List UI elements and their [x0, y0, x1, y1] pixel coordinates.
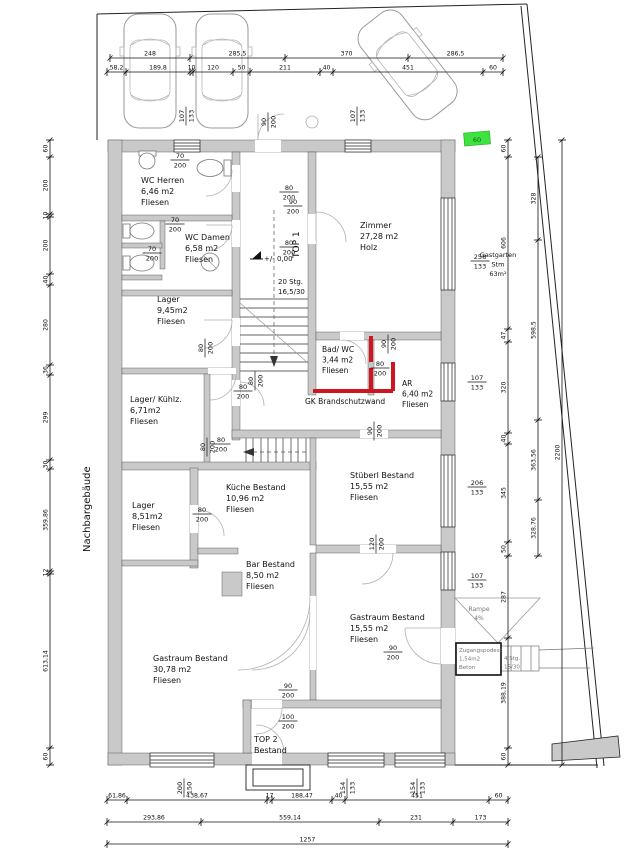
- ramp-triangle: [455, 598, 540, 643]
- neighbor-label: Nachbargebäude: [82, 466, 93, 552]
- room-lager-kuehlz-text: Lager/ Kühlz.: [130, 395, 182, 404]
- svg-text:200: 200: [282, 723, 294, 731]
- svg-text:133: 133: [349, 782, 357, 794]
- svg-text:359,86: 359,86: [43, 509, 50, 531]
- gastgarten-label-text: 63m²: [489, 270, 507, 278]
- podest-label-text: 1,54m2: [459, 657, 480, 663]
- svg-text:60: 60: [501, 753, 508, 761]
- toilet-icon: [123, 224, 130, 238]
- ext-stair-label: 4 Stg.15/30: [504, 656, 520, 671]
- svg-text:248: 248: [144, 51, 156, 58]
- toilet-icon: [224, 160, 231, 176]
- svg-text:206: 206: [471, 479, 483, 487]
- opening-dim: 90200: [279, 682, 298, 700]
- opening-dim: 107133: [468, 374, 487, 392]
- svg-text:200: 200: [43, 240, 50, 252]
- svg-text:107: 107: [178, 110, 186, 122]
- svg-text:70: 70: [171, 216, 179, 224]
- svg-text:133: 133: [359, 110, 367, 122]
- svg-text:60: 60: [43, 145, 50, 153]
- opening-dim: 107133: [468, 572, 487, 590]
- room-zimmer-text: 27,28 m2: [360, 232, 398, 241]
- entrance-porch: [246, 765, 310, 790]
- svg-text:90: 90: [366, 427, 374, 435]
- room-bar-text: Fliesen: [246, 582, 274, 591]
- svg-text:328: 328: [531, 193, 538, 205]
- svg-text:120: 120: [207, 65, 219, 72]
- gastgarten-label-text: Stm: [491, 261, 504, 269]
- room-lager-851: Lager8,51m2Fliesen: [132, 501, 163, 532]
- svg-text:200: 200: [43, 180, 50, 192]
- opening-dim: 80200: [247, 372, 265, 391]
- svg-text:17: 17: [266, 793, 274, 800]
- svg-text:100: 100: [282, 713, 294, 721]
- svg-text:133: 133: [188, 110, 196, 122]
- svg-text:133: 133: [471, 384, 483, 392]
- opening-dim: 100200: [279, 713, 298, 731]
- toilet-icon: [197, 160, 223, 177]
- svg-text:90: 90: [389, 644, 397, 652]
- room-wc-herren-text: 6,46 m2: [141, 187, 174, 196]
- svg-text:200: 200: [378, 538, 386, 550]
- room-bar-text: 8,50 m2: [246, 571, 279, 580]
- svg-text:286,5: 286,5: [447, 51, 465, 58]
- sink-icon: [139, 153, 155, 169]
- room-lager-945-text: 9,45m2: [157, 306, 188, 315]
- room-gastraum-30-text: 30,78 m2: [153, 665, 191, 674]
- opening-dim: 107133: [178, 107, 196, 126]
- room-top2-text: Bestand: [254, 746, 287, 755]
- dimension-chain: 6020010200402803629930359,8612613,1460: [43, 138, 55, 768]
- room-bad-wc-text: Bad/ WC: [322, 345, 354, 354]
- ext-stair-label-text: 4 Stg.: [504, 656, 520, 662]
- svg-text:388,19: 388,19: [501, 682, 508, 704]
- room-stueberl-text: Fliesen: [350, 493, 378, 502]
- svg-text:60: 60: [43, 753, 50, 761]
- svg-text:345: 345: [501, 487, 508, 499]
- room-bad-wc-text: 3,44 m2: [322, 356, 353, 365]
- toilet-icon: [123, 256, 130, 270]
- svg-text:40: 40: [501, 435, 508, 443]
- svg-text:559,14: 559,14: [279, 815, 301, 822]
- svg-text:80: 80: [247, 377, 255, 385]
- site-marker: [306, 116, 318, 128]
- svg-text:36: 36: [43, 366, 50, 374]
- svg-text:80: 80: [285, 239, 293, 247]
- svg-text:80: 80: [198, 506, 206, 514]
- opening-dim: 90200: [384, 644, 403, 662]
- room-lager-851-text: Fliesen: [132, 523, 160, 532]
- svg-text:30: 30: [43, 461, 50, 469]
- svg-text:200: 200: [237, 393, 249, 401]
- svg-text:287: 287: [501, 591, 508, 603]
- svg-text:293,86: 293,86: [143, 815, 165, 822]
- stair-note-text: 16,5/30: [278, 288, 305, 296]
- svg-text:107: 107: [471, 572, 483, 580]
- svg-text:328,76: 328,76: [531, 517, 538, 539]
- firewall-label: GK Brandschutzwand: [305, 397, 385, 406]
- svg-text:80: 80: [217, 436, 225, 444]
- svg-text:107: 107: [349, 110, 357, 122]
- room-gastraum-15: Gastraum Bestand15,55 m2Fliesen: [350, 613, 425, 644]
- rampe-label-text: Rampe: [468, 606, 489, 613]
- svg-text:280: 280: [43, 319, 50, 331]
- opening-dim: 120200: [368, 535, 386, 554]
- svg-text:189,8: 189,8: [149, 65, 167, 72]
- svg-text:200: 200: [283, 249, 295, 257]
- svg-text:50: 50: [238, 65, 246, 72]
- svg-text:370: 370: [341, 51, 353, 58]
- svg-text:1257: 1257: [300, 837, 316, 844]
- svg-text:133: 133: [471, 582, 483, 590]
- room-ar-text: 6,40 m2: [402, 390, 433, 399]
- room-stueberl-text: 15,55 m2: [350, 482, 388, 491]
- room-lager-kuehlz: Lager/ Kühlz.6,71m2Fliesen: [130, 395, 182, 426]
- parked-cars: [120, 2, 466, 129]
- svg-text:299: 299: [43, 412, 50, 424]
- green-marker-text-text: 60: [473, 136, 481, 144]
- svg-text:200: 200: [176, 782, 184, 794]
- room-gastraum-30-text: Gastraum Bestand: [153, 654, 228, 663]
- svg-text:70: 70: [176, 152, 184, 160]
- svg-text:200: 200: [390, 338, 398, 350]
- svg-text:107: 107: [471, 374, 483, 382]
- svg-text:285,5: 285,5: [229, 51, 247, 58]
- rampe-label: Rampe4%: [468, 606, 489, 622]
- dimension-chain: 2200: [555, 138, 567, 768]
- room-ar: AR6,40 m2Fliesen: [402, 379, 433, 409]
- svg-text:47: 47: [501, 332, 508, 340]
- svg-text:200: 200: [282, 692, 294, 700]
- toilet-icon: [130, 223, 154, 239]
- svg-text:133: 133: [471, 489, 483, 497]
- podest-label-text: Zugangspodest: [459, 648, 503, 654]
- svg-text:200: 200: [215, 446, 227, 454]
- svg-text:200: 200: [270, 116, 278, 128]
- room-kueche-text: 10,96 m2: [226, 494, 264, 503]
- room-kueche-text: Fliesen: [226, 505, 254, 514]
- svg-text:438,67: 438,67: [186, 793, 208, 800]
- svg-text:200: 200: [376, 425, 384, 437]
- room-gastraum-15-text: Fliesen: [350, 635, 378, 644]
- room-top2-text: TOP 2: [253, 735, 278, 744]
- room-lager-945-text: Lager: [157, 295, 180, 304]
- dimension-chain: 293,86559,14231173: [105, 815, 511, 827]
- svg-text:188,47: 188,47: [291, 793, 313, 800]
- svg-text:200: 200: [209, 441, 217, 453]
- room-gastraum-15-text: Gastraum Bestand: [350, 613, 425, 622]
- svg-text:10: 10: [43, 212, 50, 220]
- svg-text:40: 40: [323, 65, 331, 72]
- svg-text:58,2: 58,2: [110, 65, 124, 72]
- svg-text:61,86: 61,86: [108, 793, 126, 800]
- room-wc-damen-text: 6,58 m2: [185, 244, 218, 253]
- room-lager-851-text: 8,51m2: [132, 512, 163, 521]
- stair-note-text: 20 Stg.: [278, 278, 303, 286]
- room-zimmer-text: Zimmer: [360, 221, 392, 230]
- opening-dim: 107133: [349, 107, 367, 126]
- opening-dim: 206133: [468, 479, 487, 497]
- room-wc-herren: WC Herren6,46 m2Fliesen: [141, 176, 184, 207]
- stair-corridor: [243, 438, 306, 462]
- svg-text:211: 211: [279, 65, 291, 72]
- room-wc-damen: WC Damen6,58 m2Fliesen: [185, 233, 230, 264]
- room-lager-851-text: Lager: [132, 501, 155, 510]
- room-top2: TOP 2Bestand: [253, 735, 287, 755]
- svg-text:200: 200: [207, 342, 215, 354]
- dimension-chain: 1257: [105, 837, 511, 849]
- podest-label-text: Beton: [459, 665, 476, 671]
- svg-text:173: 173: [475, 815, 487, 822]
- room-lager-kuehlz-text: 6,71m2: [130, 406, 161, 415]
- svg-text:80: 80: [239, 383, 247, 391]
- svg-text:60: 60: [489, 65, 497, 72]
- svg-text:80: 80: [199, 443, 207, 451]
- svg-text:320: 320: [501, 382, 508, 394]
- svg-text:12: 12: [43, 569, 50, 577]
- svg-text:200: 200: [169, 226, 181, 234]
- room-ar-text: Fliesen: [402, 400, 429, 409]
- room-lager-kuehlz-text: Fliesen: [130, 417, 158, 426]
- svg-text:200: 200: [287, 208, 299, 216]
- svg-text:40: 40: [335, 793, 343, 800]
- svg-text:200: 200: [374, 370, 386, 378]
- svg-text:200: 200: [174, 162, 186, 170]
- svg-text:40: 40: [43, 276, 50, 284]
- svg-text:200: 200: [146, 255, 158, 263]
- svg-text:363,56: 363,56: [531, 449, 538, 471]
- room-wc-herren-text: Fliesen: [141, 198, 169, 207]
- svg-text:80: 80: [197, 344, 205, 352]
- rampe-label-text: 4%: [474, 615, 484, 622]
- svg-text:70: 70: [148, 245, 156, 253]
- room-kueche-text: Küche Bestand: [226, 483, 286, 492]
- svg-text:200: 200: [196, 516, 208, 524]
- svg-text:613,14: 613,14: [43, 650, 50, 672]
- floor-plan-drawing: WC Herren6,46 m2FliesenWC Damen6,58 m2Fl…: [0, 0, 628, 868]
- room-gastraum-15-text: 15,55 m2: [350, 624, 388, 633]
- room-gastraum-30-text: Fliesen: [153, 676, 181, 685]
- svg-text:200: 200: [257, 375, 265, 387]
- room-wc-damen-text: WC Damen: [185, 233, 230, 242]
- dimension-chain: 60606473204034550287388,1960: [501, 138, 513, 768]
- room-stueberl-text: Stüberl Bestand: [350, 471, 414, 480]
- svg-text:451: 451: [402, 65, 414, 72]
- neighbor-label-text: Nachbargebäude: [82, 466, 93, 552]
- svg-text:80: 80: [376, 360, 384, 368]
- svg-text:50: 50: [501, 545, 508, 553]
- svg-text:606: 606: [501, 237, 508, 249]
- svg-text:80: 80: [285, 184, 293, 192]
- room-wc-damen-text: Fliesen: [185, 255, 213, 264]
- svg-text:133: 133: [474, 263, 486, 271]
- svg-text:598,5: 598,5: [531, 321, 538, 339]
- level-marker-icon: [250, 251, 263, 259]
- opening-dim: 70200: [171, 152, 190, 170]
- room-zimmer: Zimmer27,28 m2Holz: [360, 221, 398, 252]
- svg-text:231: 231: [410, 815, 422, 822]
- svg-text:90: 90: [284, 682, 292, 690]
- room-wc-herren-text: WC Herren: [141, 176, 184, 185]
- dimension-chain: 328598,5363,56328,76: [531, 155, 543, 559]
- opening-dim: 80200: [197, 339, 215, 358]
- svg-text:90: 90: [289, 198, 297, 206]
- firewall-label-text: GK Brandschutzwand: [305, 397, 385, 406]
- svg-text:200: 200: [387, 654, 399, 662]
- svg-text:451: 451: [411, 793, 423, 800]
- svg-text:60: 60: [495, 793, 503, 800]
- stair-note: 20 Stg.16,5/30: [278, 278, 305, 296]
- svg-text:90: 90: [260, 118, 268, 126]
- room-bar-text: Bar Bestand: [246, 560, 295, 569]
- svg-text:258: 258: [474, 253, 486, 261]
- svg-text:2200: 2200: [555, 445, 562, 461]
- room-bad-wc: Bad/ WC3,44 m2Fliesen: [322, 345, 354, 375]
- green-marker-text: 60: [473, 136, 481, 144]
- room-stueberl: Stüberl Bestand15,55 m2Fliesen: [350, 471, 414, 502]
- room-zimmer-text: Holz: [360, 243, 377, 252]
- svg-text:10: 10: [188, 65, 196, 72]
- room-bad-wc-text: Fliesen: [322, 366, 349, 375]
- floor-plan-page: WC Herren6,46 m2FliesenWC Damen6,58 m2Fl…: [0, 0, 628, 868]
- svg-text:90: 90: [380, 340, 388, 348]
- svg-text:60: 60: [501, 145, 508, 153]
- room-lager-945: Lager9,45m2Fliesen: [157, 295, 188, 326]
- room-lager-945-text: Fliesen: [157, 317, 185, 326]
- ext-stair-label-text: 15/30: [504, 665, 520, 671]
- room-gastraum-30: Gastraum Bestand30,78 m2Fliesen: [153, 654, 228, 685]
- svg-text:120: 120: [368, 538, 376, 550]
- room-bar: Bar Bestand8,50 m2Fliesen: [246, 560, 295, 591]
- dimension-chain: 61,86438,6717188,474045160: [105, 793, 511, 805]
- room-ar-text: AR: [402, 379, 412, 388]
- room-kueche: Küche Bestand10,96 m2Fliesen: [226, 483, 286, 514]
